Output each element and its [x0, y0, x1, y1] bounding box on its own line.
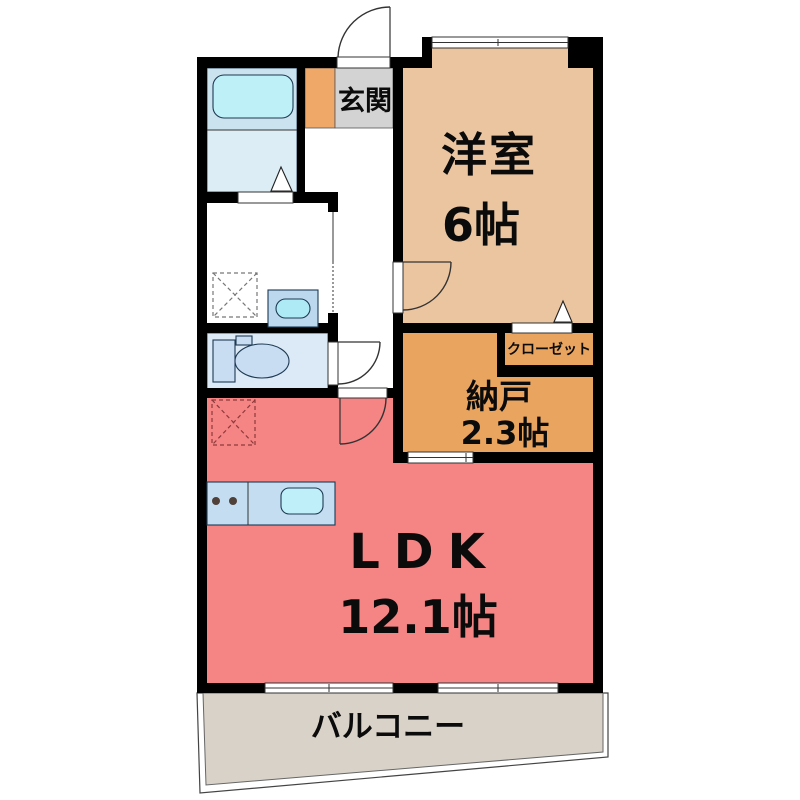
ldk-label: LDK	[349, 524, 499, 580]
toilet-door-arc-icon	[338, 342, 380, 384]
kitchen-sink-icon	[281, 488, 323, 514]
wall-bottom-2	[393, 683, 438, 693]
ldk-door-opening	[338, 388, 387, 398]
wall-left	[197, 57, 207, 693]
stove-burner-icon	[212, 497, 220, 505]
washbasin-icon	[268, 290, 318, 327]
storage-door-icon	[408, 452, 473, 463]
storage-room-label: 納戸	[466, 377, 532, 416]
bay-window-icon	[432, 37, 568, 48]
washer-space-icon	[213, 273, 257, 317]
entrance-label: 玄関	[338, 85, 392, 117]
wall-bath-right	[297, 57, 305, 192]
ldk-window-left-icon	[265, 683, 393, 693]
western-room-floor	[403, 68, 593, 323]
western-room-label: 洋室	[441, 128, 537, 182]
wall-top-left	[197, 57, 337, 68]
closet-label: クローゼット	[507, 341, 591, 358]
wall-hall-western	[393, 57, 403, 463]
stove-burner-icon	[229, 497, 237, 505]
toilet-door-opening	[328, 342, 338, 385]
bathroom-door-opening	[238, 192, 293, 203]
entrance-door-opening	[337, 57, 390, 68]
storage-room-size: 2.3帖	[461, 414, 550, 452]
wall-bay-left	[422, 37, 432, 68]
western-room-baywindow-floor	[432, 48, 568, 70]
wall-closet-bottom	[497, 365, 603, 377]
washroom-sliding-door-icon	[328, 212, 338, 313]
ldk-window-right-icon	[438, 683, 558, 693]
wall-bottom-3	[558, 683, 603, 693]
kitchen-counter-icon	[207, 482, 335, 525]
wall-bottom-1	[197, 683, 265, 693]
western-room-door-opening	[393, 262, 403, 313]
floorplan-canvas: 玄関 洋室 6帖 クローゼット 納戸 2.3帖 LDK 12.1帖 バルコニー	[0, 0, 800, 800]
ldk-size: 12.1帖	[338, 590, 498, 644]
bathtub-icon	[213, 75, 293, 118]
closet-door-opening	[512, 323, 572, 333]
entrance-door-arc-icon	[338, 7, 390, 57]
shoe-cabinet	[305, 68, 335, 128]
balcony-label: バルコニー	[311, 709, 465, 745]
western-room-size: 6帖	[442, 198, 520, 252]
